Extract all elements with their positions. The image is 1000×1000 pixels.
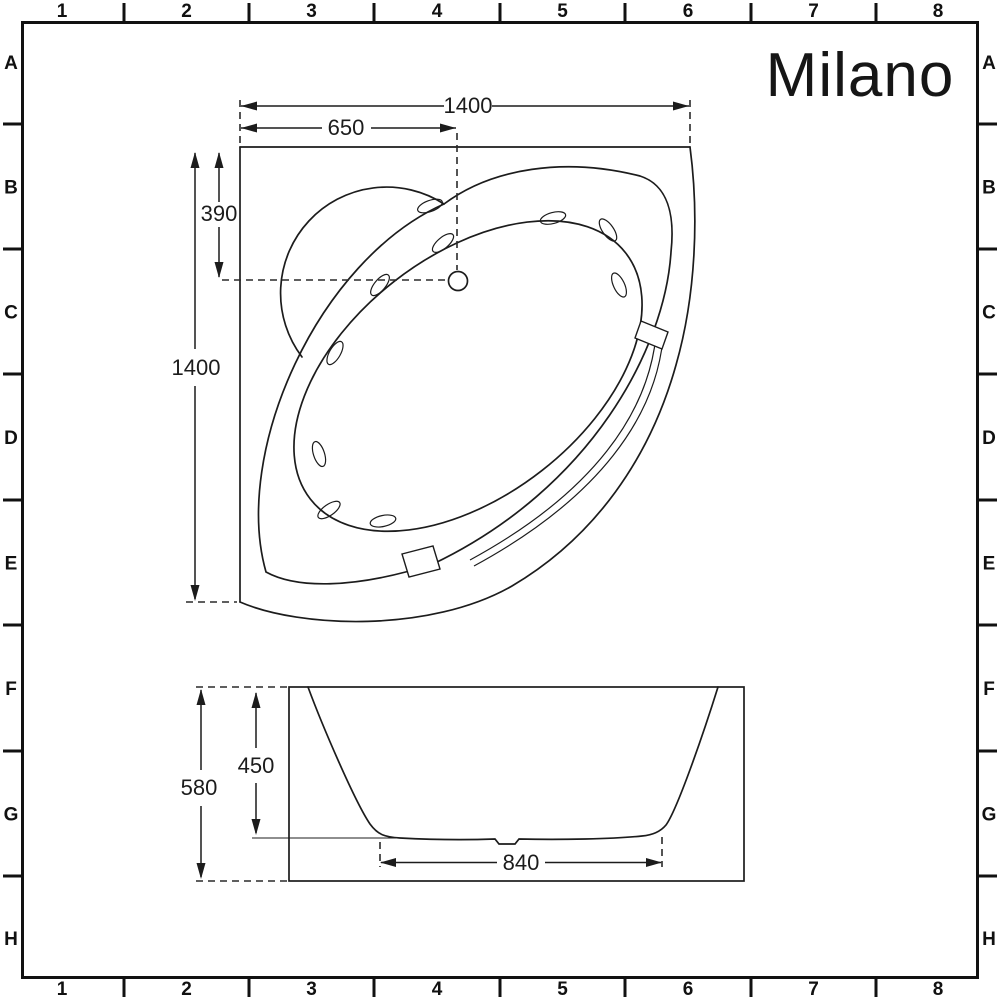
- brand-logo: Milano: [766, 41, 955, 110]
- col-label-bottom-3: 3: [306, 979, 317, 1000]
- row-label-left-H: H: [4, 929, 18, 950]
- row-label-right-D: D: [982, 428, 996, 449]
- dim-value: 1400: [172, 355, 221, 380]
- col-label-bottom-2: 2: [181, 979, 192, 1000]
- row-label-left-B: B: [4, 178, 18, 199]
- row-label-left-E: E: [5, 554, 18, 575]
- page-background: [0, 0, 1000, 1000]
- row-label-left-F: F: [5, 679, 17, 700]
- row-label-right-B: B: [982, 178, 996, 199]
- row-label-right-E: E: [983, 554, 996, 575]
- col-label-top-5: 5: [557, 1, 568, 22]
- row-label-left-D: D: [4, 428, 18, 449]
- dim-value: 840: [503, 850, 540, 875]
- col-label-bottom-8: 8: [933, 979, 944, 1000]
- dim-value: 650: [328, 115, 365, 140]
- dim-value: 1400: [444, 93, 493, 118]
- technical-drawing-page: 1 2 3 4 5 6 7 8 1 2 3 4 5 6 7 8 A B C D …: [0, 0, 1000, 1000]
- row-label-left-A: A: [4, 53, 18, 74]
- col-label-top-6: 6: [683, 1, 694, 22]
- dim-value: 580: [181, 775, 218, 800]
- row-label-right-A: A: [982, 53, 996, 74]
- col-label-top-1: 1: [57, 1, 68, 22]
- row-label-right-C: C: [982, 303, 996, 324]
- col-label-top-2: 2: [181, 1, 192, 22]
- col-label-bottom-7: 7: [808, 979, 819, 1000]
- col-label-top-4: 4: [432, 1, 443, 22]
- bath-technical-drawing: 1 2 3 4 5 6 7 8 1 2 3 4 5 6 7 8 A B C D …: [0, 0, 1000, 1000]
- row-label-left-C: C: [4, 303, 18, 324]
- dim-value: 450: [238, 753, 275, 778]
- col-label-bottom-5: 5: [557, 979, 568, 1000]
- col-label-top-3: 3: [306, 1, 317, 22]
- dim-value: 390: [201, 201, 238, 226]
- col-label-top-7: 7: [808, 1, 819, 22]
- row-label-left-G: G: [4, 805, 19, 826]
- col-label-bottom-1: 1: [57, 979, 68, 1000]
- row-label-right-H: H: [982, 929, 996, 950]
- col-label-bottom-6: 6: [683, 979, 694, 1000]
- row-label-right-G: G: [982, 805, 997, 826]
- row-label-right-F: F: [983, 679, 995, 700]
- col-label-bottom-4: 4: [432, 979, 443, 1000]
- col-label-top-8: 8: [933, 1, 944, 22]
